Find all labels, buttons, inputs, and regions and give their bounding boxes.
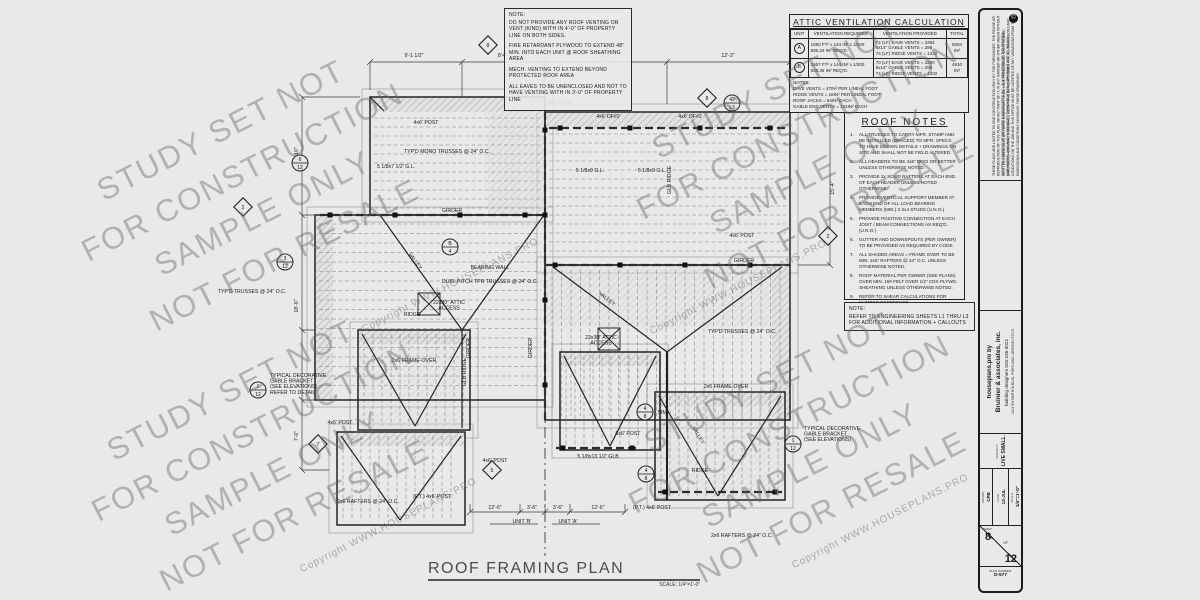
total-cell: 5004 IN² (946, 38, 967, 58)
plan-label: 2x6 FRAME-OVER (392, 358, 437, 364)
detail-callout: 48 (638, 466, 654, 482)
plan-label: SIM. (658, 410, 669, 416)
section-marker-diamond: 7 (309, 435, 327, 453)
svg-text:12: 12 (297, 165, 303, 171)
plan-label: GLB RIDGE (462, 357, 468, 386)
svg-text:1: 1 (257, 384, 260, 390)
plan-label: 4x6' DF#2 (678, 114, 702, 120)
table-note-line: GABLE END VENTS = 144IN² EACH (793, 104, 965, 110)
svg-text:4: 4 (644, 406, 647, 412)
detail-callout: 312 (277, 254, 293, 270)
note-title: NOTE: (509, 12, 627, 19)
plan-label: BEARING WALL (471, 265, 510, 271)
note-paragraph: FIRE RETARDANT PLYWOOD TO EXTEND 48" MIN… (509, 43, 627, 63)
section-marker-diamond: 8 (479, 36, 497, 54)
plan-label: 5 1/8x9 G.L. (638, 168, 666, 174)
attic-ventilation-table: ATTIC VENTILATION CALCULATION UNITVENTIL… (789, 14, 969, 113)
svg-text:8: 8 (644, 414, 647, 420)
plan-label: GLB RIDGE (667, 165, 673, 194)
roof-note-item: 3.PROVIDE 2x SOLID RAFTERS AT EACH END O… (850, 174, 959, 192)
plan-label: 4x6' POST (328, 420, 354, 426)
copyright-paragraph-1: THESE PLANS ARE LIMITED TO ONE CONSTRUCT… (992, 14, 1000, 176)
plan-label: 2x6 FRAME-OVER (704, 384, 749, 390)
section-marker-diamond: 8 (698, 89, 716, 107)
plan-label: 18'-6" (294, 299, 300, 312)
drawing-sheet: TYP'D MONO TRUSSES @ 24" O.C.TYP'D TRUSS… (0, 0, 1200, 600)
ventilation-provided-cell: 70 (LF) EAVE VENTS = 3290 6x14" GABLE VE… (873, 58, 946, 78)
plan-label: 4x6' DF#2 (596, 114, 620, 120)
ventilation-required-cell: 1957 FT² x 144 IN² x 1/300 939.36 IN² RE… (808, 58, 873, 78)
brand-line: houseplans.pro by (987, 345, 993, 398)
plan-label: 4x6' POST (414, 120, 440, 126)
copyright-paragraph-2: WRITTEN DIMENSIONS ON THESE DRAWINGS SHA… (1002, 14, 1010, 176)
plan-label: (P.T.) 4x6' POST (633, 505, 672, 511)
sheet-number-box: SHEET 8 OF 12 (980, 525, 1021, 566)
svg-text:12: 12 (790, 446, 796, 452)
plan-label: 12'-3" (721, 53, 734, 59)
svg-text:42: 42 (729, 97, 735, 103)
svg-text:8: 8 (487, 43, 490, 49)
section-marker-diamond: 2 (234, 198, 252, 216)
sheet-total: 12 (1005, 553, 1017, 565)
plan-label: VALLEY (407, 252, 423, 272)
ventilation-calc-grid: UNITVENTILATION REQUIREDVENTILATION PROV… (790, 29, 968, 78)
info-field: DRAWN:CPB (980, 469, 992, 525)
svg-text:8: 8 (706, 96, 709, 102)
plan-label: 3'-6" (527, 505, 537, 511)
plan-label: RIDGE (692, 468, 709, 474)
note-paragraph: DO NOT PROVIDE ANY ROOF VENTING OR VENT … (509, 20, 627, 40)
roof-note-item: 2.ALL HEADERS TO BE 4x6" DF#2 OR BETTER … (850, 159, 959, 171)
plan-label: TYP'D MONO TRUSSES @ 24" O.C. (404, 149, 490, 155)
of-label: OF (1003, 541, 1008, 545)
plan-number-box: PLAN NUMBER: D-577 (980, 566, 1021, 591)
sheet-drawing-title: ROOF FRAMING PLAN SCALE: 1/4"=1'-0" (428, 560, 700, 588)
note-paragraph: MECH. VENTING TO EXTEND BEYOND PROTECTED… (509, 67, 627, 80)
detail-callout: 112 (785, 436, 801, 452)
plan-label: 22x30" ATTICACCESS (585, 335, 617, 347)
plan-label: 12'-6" (591, 505, 604, 511)
svg-text:2: 2 (827, 234, 830, 240)
svg-text:12: 12 (282, 264, 288, 270)
svg-text:7: 7 (317, 442, 320, 448)
note-text: REFER TO ENGINEERING SHEETS L1 THRU L3 F… (849, 314, 970, 327)
roof-notes-list: 1.ALL TRUSSES TO CARRY MFR. STAMP AND BE… (850, 132, 959, 306)
roof-venting-note: NOTE: DO NOT PROVIDE ANY ROOF VENTING OR… (504, 8, 632, 111)
plan-label: 5 1/8x9 G.L. (576, 168, 604, 174)
brand-line: building designers 503-246-3022 (1004, 339, 1009, 406)
unit-badge: B (794, 62, 805, 73)
detail-callout: 42L3 (724, 95, 740, 111)
table-row: B1957 FT² x 144 IN² x 1/300 939.36 IN² R… (791, 58, 968, 78)
roof-note-item: 6.GUTTER AND DOWNSPOUTS (PER OWNER) TO B… (850, 237, 959, 249)
column-header: TOTAL (946, 30, 967, 39)
unit-badge: A (794, 43, 805, 54)
title-underline (428, 579, 700, 581)
column-header: VENTILATION REQUIRED (808, 30, 873, 39)
plan-label: 6x6' POST (616, 431, 642, 437)
plan-label: GIRDER (442, 208, 462, 214)
revisions-section (980, 180, 1021, 310)
copyright-section: THESE PLANS ARE LIMITED TO ONE CONSTRUCT… (980, 10, 1021, 180)
plan-label: (P.T.) 4x6' POST (413, 494, 452, 500)
roof-note-item: 5.PROVIDE POSITIVE CONNECTION AT EACH JO… (850, 216, 959, 234)
plan-label: 5 1/8x7 1/2' G.L. (377, 164, 415, 170)
plan-label: DUEL PITCH TPR TRUSSES @ 24" O.C. (442, 279, 538, 285)
svg-text:5: 5 (491, 468, 494, 474)
roof-notes-title: ROOF NOTES (850, 117, 959, 128)
title-block: THESE PLANS ARE LIMITED TO ONE CONSTRUCT… (978, 8, 1023, 593)
plan-label: 2x6 RAFTERS @ 24" O.C. (711, 533, 773, 539)
svg-text:3: 3 (284, 256, 287, 262)
roof-notes-panel: ROOF NOTES 1.ALL TRUSSES TO CARRY MFR. S… (844, 112, 965, 300)
info-field: SCALE:1/4"=1'-0" (1008, 469, 1021, 525)
note-title: NOTE: (849, 306, 970, 313)
svg-text:1: 1 (792, 438, 795, 444)
plan-label: 22x30" ATTICACCESS (433, 300, 465, 312)
plan-label: TYP'D TRUSSES @ 24" O.C. (218, 289, 287, 295)
plan-label: 4x6' POST (483, 458, 509, 464)
project-label: PROJECT: (995, 444, 999, 459)
plan-label: UNIT 'A' (559, 519, 578, 525)
plan-label: GIRDER (528, 338, 534, 358)
column-header: VENTILATION PROVIDED (873, 30, 946, 39)
project-section: PROJECT: LIVE SMALL. (980, 433, 1021, 468)
plan-label: 3'-6" (553, 505, 563, 511)
roof-note-item: 1.ALL TRUSSES TO CARRY MFR. STAMP AND BE… (850, 132, 959, 156)
column-header: UNIT (791, 30, 809, 39)
copyright-icon: © (1009, 14, 1018, 23)
svg-text:2: 2 (242, 205, 245, 211)
plan-label: 9'-1 1/2" (405, 53, 424, 59)
project-name: LIVE SMALL. (1001, 435, 1007, 466)
drawing-scale: SCALE: 1/4"=1'-0" (428, 582, 700, 588)
roof-note-item: 8.ROOF MATERIAL PER OWNER (SEE PLANS) OV… (850, 273, 959, 291)
plan-label: TYP'D TRUSSES @ 24" O.C. (708, 329, 777, 335)
plan-label: UNIT 'B' (513, 519, 532, 525)
note-body: DO NOT PROVIDE ANY ROOF VENTING OR VENT … (509, 20, 627, 104)
svg-text:6: 6 (299, 157, 302, 163)
table-row: A1950 FT² x 144 IN² x 1/300 936.24 IN² R… (791, 38, 968, 58)
plan-label: 4x6' POST (730, 233, 756, 239)
ventilation-provided-cell: 72 (LF) EAVE VENTS = 3384 6x14" GABLE VE… (873, 38, 946, 58)
firm-info-section: houseplans.pro by Bruinier & associates,… (980, 310, 1021, 433)
svg-text:4: 4 (449, 249, 452, 255)
table-notes: NOTES: EAVE VENTS = 47IN² PER LINEAL FOO… (790, 78, 968, 111)
brand-line: Bruinier & associates, inc. (995, 331, 1002, 412)
ventilation-required-cell: 1950 FT² x 144 IN² x 1/300 936.24 IN² RE… (808, 38, 873, 58)
plan-label: 12'-6" (488, 505, 501, 511)
plan-label: 15'-4" (830, 181, 836, 194)
plan-label: GIRDER (734, 258, 754, 264)
section-marker-diamond: 2 (819, 227, 837, 245)
detail-callout: 612 (292, 155, 308, 171)
plan-label: 2x6 RAFTERS @ 24" O.C. (337, 499, 399, 505)
roof-note-item: 7.ALL SHADED AREAS = FRAME OVER TO BE MI… (850, 252, 959, 270)
drawing-info-fields: DRAWN:CPBDATE:12-JULSCALE:1/4"=1'-0" (980, 468, 1021, 525)
info-field: DATE:12-JUL (992, 469, 1008, 525)
svg-text:4: 4 (645, 468, 648, 474)
plan-label: 5 1/8x13 1/2' GLB (577, 454, 619, 460)
roof-note-item: 4.PROVIDE VERTICAL SUPPORT MEMBER AT EAC… (850, 195, 959, 213)
table-title: ATTIC VENTILATION CALCULATION (790, 15, 968, 29)
sheet-number: 8 (985, 531, 991, 543)
page-title: ROOF FRAMING PLAN (428, 560, 700, 578)
shaded-frame-over-areas (315, 97, 790, 500)
plan-label: RIDGE (404, 312, 421, 318)
note-paragraph: ALL EAVES TO BE UNENCLOSED AND NOT TO HA… (509, 84, 627, 104)
detail-callout: 112 (250, 382, 266, 398)
engineering-note: NOTE: REFER TO ENGINEERING SHEETS L1 THR… (844, 302, 975, 331)
total-cell: 4910 IN² (946, 58, 967, 78)
brand-line: 1304 SW BERTHA BLVD, PORTLAND, OREGON 97… (1011, 329, 1015, 415)
svg-text:12: 12 (255, 392, 261, 398)
plan-label: GIRDER (466, 338, 472, 358)
svg-text:8: 8 (645, 476, 648, 482)
plan-label: 7'-0" (294, 431, 300, 441)
plan-label: TYPICAL DECORATIVEGABLE BRACKET(SEE ELEV… (804, 426, 861, 443)
detail-callout: B4 (442, 239, 458, 255)
plan-number: D-577 (980, 573, 1021, 578)
svg-text:L3: L3 (729, 105, 735, 111)
detail-callout: 48 (637, 404, 653, 420)
